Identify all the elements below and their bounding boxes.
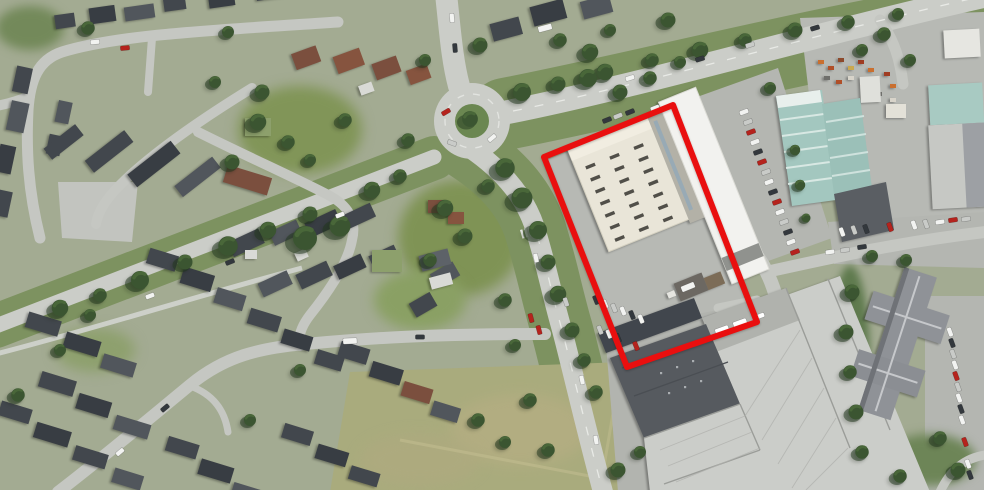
yard-tent [886,104,906,118]
roundabout [434,83,510,159]
road-north [446,0,459,86]
aerial-photo-viewport[interactable] [0,0,984,490]
aerial-photo [0,0,984,490]
